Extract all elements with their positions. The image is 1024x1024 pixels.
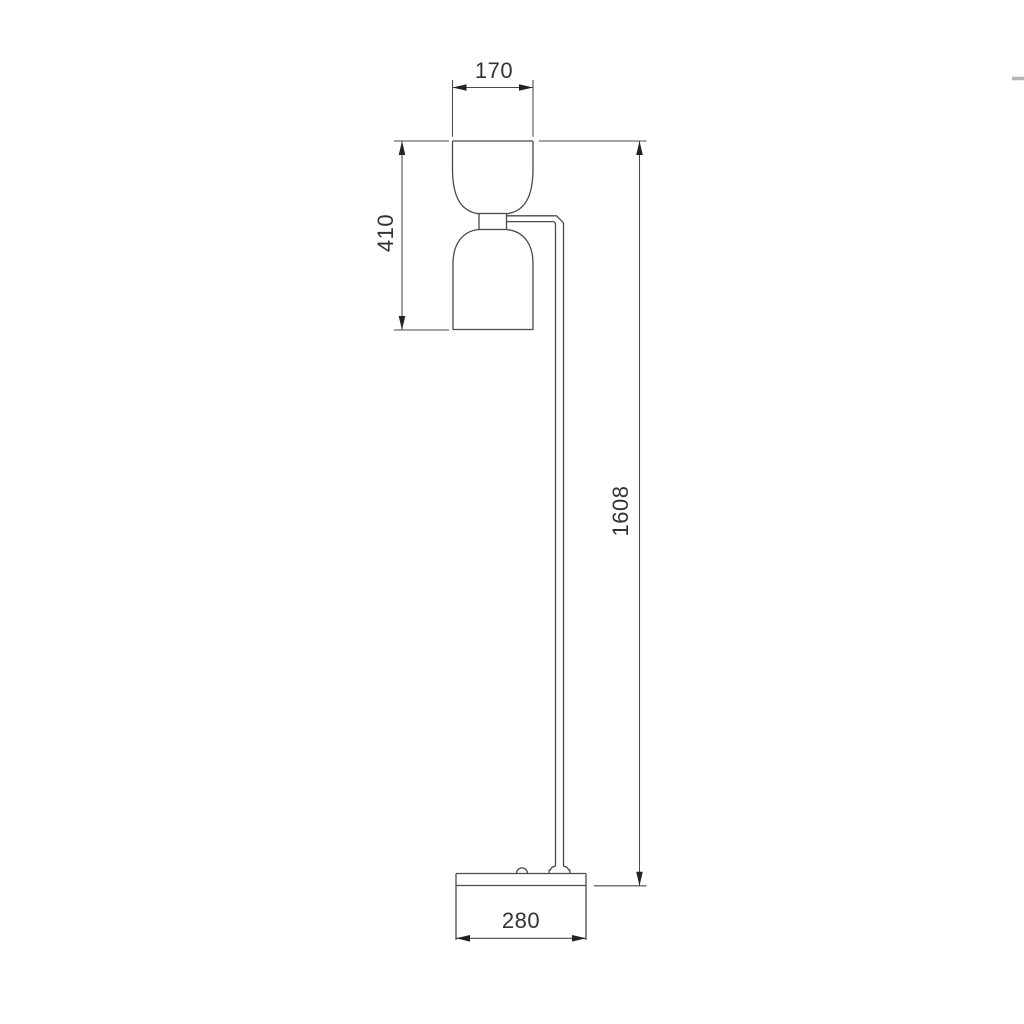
lamp-pole [556, 223, 564, 866]
lamp-arm [507, 216, 564, 225]
power-switch-knob [517, 868, 528, 874]
lamp-technical-drawing-svg [0, 0, 1024, 1024]
dimension-label-shade-width: 170 [475, 60, 513, 82]
dimension-shade-width [453, 80, 534, 137]
dimension-label-base-width: 280 [502, 910, 540, 932]
dimension-head-height [394, 141, 449, 330]
product-dimension-drawing: 170 410 1608 280 [0, 0, 1024, 1024]
pole-foot-flange [549, 866, 570, 873]
shade-connector [479, 214, 507, 230]
dimension-base-width [456, 935, 586, 942]
upper-shade [453, 141, 534, 214]
lower-shade [453, 230, 533, 330]
dimension-label-head-height: 410 [375, 214, 397, 252]
dimension-label-total-height: 1608 [610, 486, 632, 537]
